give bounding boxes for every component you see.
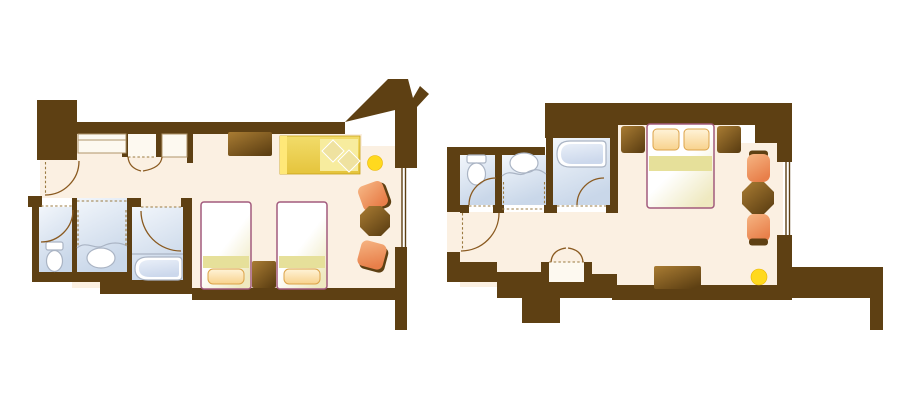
double-room-floor-plan <box>447 103 883 330</box>
washbasin <box>87 248 115 268</box>
window <box>786 162 790 235</box>
closet <box>162 134 187 157</box>
corner-niche <box>740 125 756 143</box>
closet <box>78 134 126 153</box>
chair-back <box>749 239 768 246</box>
sofa-armrest <box>280 136 287 174</box>
toilet-tank <box>467 155 486 163</box>
corner-niche <box>362 122 395 146</box>
bed-blanket-band <box>203 256 249 268</box>
nightstand <box>717 126 741 153</box>
chair-seat <box>747 154 770 182</box>
floor-plans-stage <box>0 0 910 400</box>
tv-cabinet <box>228 132 272 156</box>
floor-lamp <box>368 156 383 171</box>
twin-room-floor-plan <box>28 79 429 330</box>
nightstand <box>252 261 276 288</box>
bathtub-basin <box>139 260 179 277</box>
bed-blanket-band <box>279 256 325 268</box>
bed-pillow <box>208 269 244 284</box>
floor-plans-canvas <box>0 0 910 400</box>
toilet-tank <box>46 242 63 250</box>
dresser <box>654 266 701 289</box>
wardrobe-nook <box>128 134 156 157</box>
bed-pillow <box>684 129 709 150</box>
window <box>402 168 406 247</box>
chair-seat <box>747 214 770 242</box>
bed-pillow <box>284 269 320 284</box>
wardrobe-nook <box>549 262 584 282</box>
bed-blanket-band <box>649 156 712 171</box>
table <box>360 206 390 236</box>
toilet-bowl <box>47 251 63 272</box>
bathtub-basin <box>561 144 603 164</box>
entry-floor <box>447 212 463 252</box>
nightstand <box>621 126 645 153</box>
floor-lamp <box>751 269 767 285</box>
bed-pillow <box>653 129 679 150</box>
